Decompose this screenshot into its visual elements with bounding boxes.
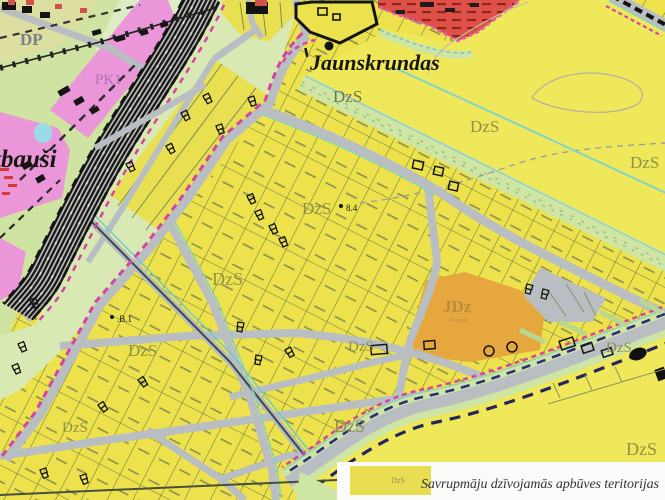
svg-text:DzS: DzS (391, 476, 405, 485)
svg-text:DzS: DzS (334, 416, 365, 436)
svg-text:tbauši: tbauši (0, 146, 57, 173)
svg-text:DzS: DzS (302, 199, 331, 218)
svg-text:8.4: 8.4 (346, 203, 358, 213)
svg-text:DP: DP (20, 30, 43, 49)
svg-text:Savrupmāju dzīvojamās apbūves: Savrupmāju dzīvojamās apbūves teritorija… (421, 477, 660, 492)
svg-text:Jaunskrundas: Jaunskrundas (309, 50, 440, 75)
svg-text:DzS: DzS (62, 420, 88, 436)
svg-text:DzS: DzS (626, 439, 657, 459)
svg-text:DzS: DzS (606, 340, 632, 356)
svg-text:DzS: DzS (128, 341, 157, 360)
svg-text:DzS: DzS (630, 153, 659, 172)
svg-text:nosauk: nosauk (450, 318, 467, 324)
svg-text:JDz: JDz (443, 297, 472, 316)
svg-text:.B.1: .B.1 (117, 314, 132, 324)
svg-text:DzS: DzS (348, 339, 374, 355)
svg-text:DzS: DzS (333, 87, 362, 106)
svg-text:PK1: PK1 (95, 72, 122, 88)
svg-text:DzS: DzS (470, 117, 499, 136)
svg-text:DzS: DzS (212, 269, 243, 289)
